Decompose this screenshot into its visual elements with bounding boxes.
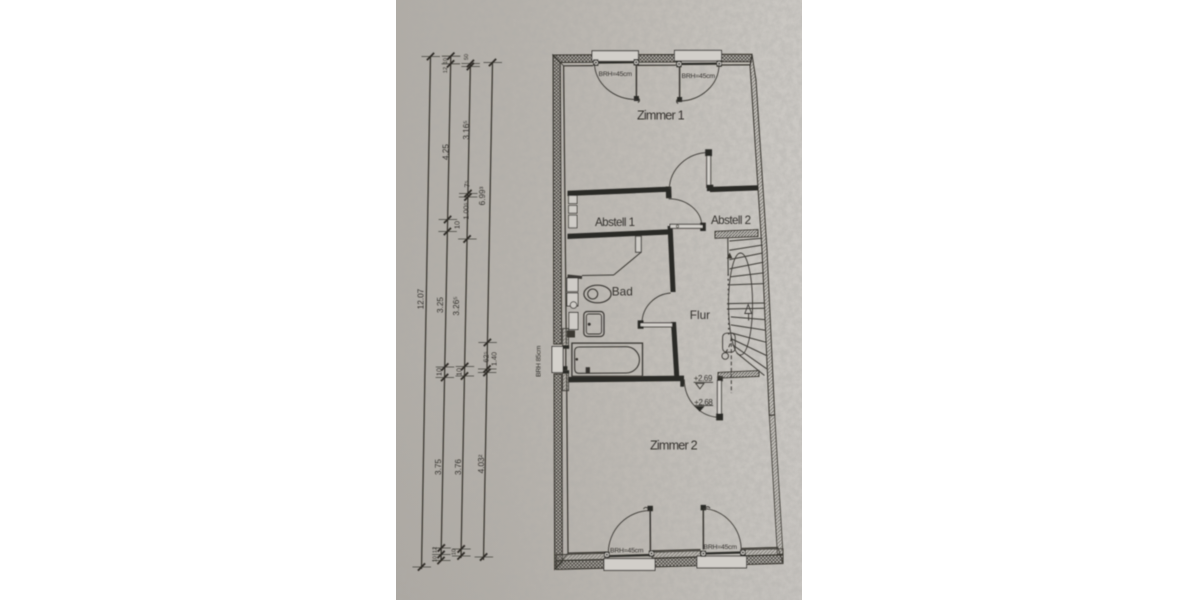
svg-text:10: 10	[455, 368, 464, 376]
svg-text:4.25: 4.25	[441, 144, 450, 160]
svg-text:10: 10	[432, 556, 438, 562]
svg-text:+2.68: +2.68	[694, 398, 713, 407]
svg-text:BRH=45cm: BRH=45cm	[599, 71, 633, 78]
svg-text:+2.69: +2.69	[694, 374, 713, 383]
svg-text:BRH=45cm: BRH=45cm	[682, 73, 716, 80]
svg-text:3.75: 3.75	[434, 459, 443, 475]
svg-text:Flur: Flur	[690, 308, 710, 322]
svg-text:4.03²: 4.03²	[477, 454, 486, 473]
svg-text:BRH=45cm: BRH=45cm	[704, 544, 738, 551]
svg-text:12: 12	[432, 547, 438, 553]
svg-text:50: 50	[464, 54, 470, 60]
svg-text:3.16⁵: 3.16⁵	[462, 120, 471, 139]
svg-text:3.76: 3.76	[454, 459, 463, 475]
svg-text:1.40: 1.40	[489, 352, 498, 366]
svg-text:3.26⁵: 3.26⁵	[452, 296, 461, 315]
svg-text:10: 10	[452, 221, 461, 229]
svg-text:6.99³: 6.99³	[478, 186, 487, 205]
svg-text:1.00⁵: 1.00⁵	[461, 202, 470, 219]
svg-text:BRH=45cm: BRH=45cm	[610, 548, 644, 555]
svg-text:Bad: Bad	[612, 285, 633, 299]
svg-text:Zimmer 1: Zimmer 1	[637, 109, 685, 123]
svg-text:Abstell 2: Abstell 2	[711, 214, 751, 227]
svg-text:12: 12	[443, 67, 449, 73]
svg-text:10: 10	[443, 58, 449, 64]
svg-text:Zimmer 2: Zimmer 2	[650, 439, 698, 453]
svg-text:3.25: 3.25	[436, 297, 445, 313]
svg-text:10: 10	[451, 549, 457, 555]
svg-text:BRH 85cm: BRH 85cm	[536, 345, 543, 377]
svg-text:12.07: 12.07	[417, 288, 426, 309]
svg-text:Abstell 1: Abstell 1	[595, 216, 635, 229]
svg-text:7⁵: 7⁵	[462, 180, 471, 187]
svg-text:10: 10	[434, 368, 443, 376]
